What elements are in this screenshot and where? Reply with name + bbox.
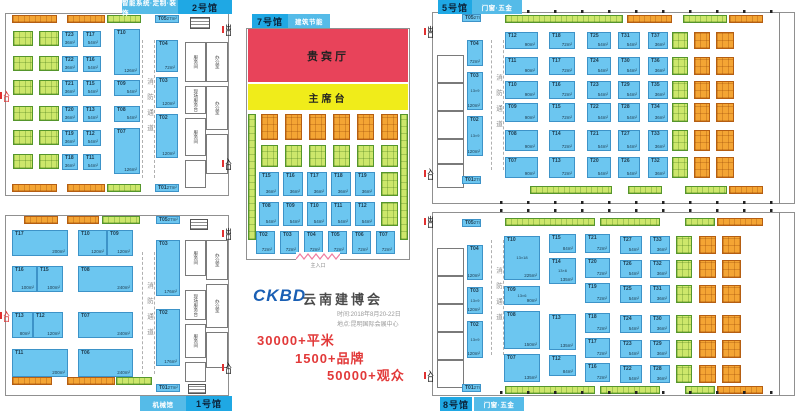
booth-T10: T1054m² xyxy=(307,202,327,226)
small-booth-cluster xyxy=(13,106,33,121)
booth-T01: T0127m² xyxy=(462,176,481,184)
service-room xyxy=(437,55,464,83)
main-entrance-label: 主入口 xyxy=(294,262,342,269)
booth-T07: T07240m² xyxy=(78,312,133,338)
booth-T06: T06240m² xyxy=(78,349,133,377)
small-booth-cluster xyxy=(716,157,734,178)
stairs-icon xyxy=(188,384,206,394)
booth-T20: T2054m² xyxy=(587,157,611,178)
service-room: 办公室 xyxy=(206,240,228,280)
booth-T21: T2172m² xyxy=(585,234,610,253)
small-booth-cluster xyxy=(12,377,52,385)
small-booth-cluster xyxy=(676,340,692,358)
hall8-entrance-left: 入口 xyxy=(424,370,432,382)
booth-T09: T0954m² xyxy=(283,202,303,226)
booth-T03: T0313×9120m² xyxy=(467,72,483,110)
booth-T18: T1836m² xyxy=(331,172,351,196)
booth-T29: T2954m² xyxy=(618,81,640,99)
vip-hall: 贵宾厅 xyxy=(248,29,408,82)
small-booth-cluster xyxy=(39,56,59,71)
booth-T35: T3536m² xyxy=(648,81,668,99)
small-booth-cluster xyxy=(39,106,59,121)
booth-T08: T0890m² xyxy=(505,130,538,151)
stairs-icon xyxy=(190,17,210,29)
service-room xyxy=(437,276,464,304)
small-booth-cluster xyxy=(12,184,57,192)
booth-T17: T1772m² xyxy=(585,338,610,358)
booth-T05: T0572m² xyxy=(328,231,347,254)
service-room xyxy=(437,332,464,360)
service-room xyxy=(437,139,464,164)
small-booth-cluster xyxy=(628,186,662,194)
small-booth-cluster xyxy=(683,15,727,23)
small-booth-cluster xyxy=(699,285,716,303)
booth-T24: T2454m² xyxy=(620,315,642,333)
small-booth-cluster xyxy=(672,103,688,122)
booth-T29: T2936m² xyxy=(650,340,670,358)
booth-T12: T1284m² xyxy=(549,355,576,376)
booth-T18: T1836m² xyxy=(62,154,78,170)
small-booth-cluster xyxy=(357,114,374,140)
small-booth-cluster xyxy=(685,186,727,194)
service-room xyxy=(437,360,464,388)
expo-venue: 地点:昆明国际会展中心 xyxy=(337,319,399,328)
wall-column-dots xyxy=(500,391,794,394)
main-entrance-zigzag xyxy=(296,252,340,260)
small-booth-cluster xyxy=(722,285,741,303)
small-booth-cluster xyxy=(13,154,33,169)
wall-line xyxy=(779,12,780,204)
booth-T10: T1013×18225m² xyxy=(504,236,540,280)
ckbd-logo: CKBD xyxy=(253,286,306,306)
hall1-entrance-right: 入口 xyxy=(222,362,230,374)
booth-T07: T07135m² xyxy=(504,354,540,382)
hall5-category: 门窗·五金 xyxy=(472,0,522,14)
booth-T01: T0127m² xyxy=(156,384,180,392)
small-booth-cluster xyxy=(116,377,152,385)
booth-T31: T3136m² xyxy=(650,285,670,303)
small-booth-cluster xyxy=(107,184,141,192)
small-booth-cluster xyxy=(285,114,302,140)
booth-T21: T2154m² xyxy=(587,130,611,151)
service-room xyxy=(437,164,464,188)
small-booth-cluster xyxy=(722,340,741,358)
service-room xyxy=(437,304,464,332)
small-booth-cluster xyxy=(13,31,33,46)
booth-T11: T1190m² xyxy=(505,57,538,75)
booth-T16: T1672m² xyxy=(585,363,610,382)
small-booth-cluster xyxy=(39,154,59,169)
booth-T09: T0913×690m² xyxy=(504,286,540,305)
small-booth-cluster xyxy=(333,145,350,167)
small-booth-cluster xyxy=(381,145,398,167)
booth-T19: T1936m² xyxy=(62,130,78,146)
service-room: 办公室 xyxy=(206,42,228,82)
small-booth-cluster xyxy=(67,377,115,385)
booth-T23: T2354m² xyxy=(587,81,611,99)
small-booth-cluster xyxy=(39,130,59,145)
booth-T09: T09120m² xyxy=(107,230,133,256)
booth-T33: T3336m² xyxy=(650,236,670,254)
small-booth-cluster xyxy=(285,145,302,167)
booth-T21: T2136m² xyxy=(62,80,78,96)
wall-column-dots xyxy=(500,10,794,13)
hall8-tag: 8号馆 xyxy=(440,397,472,411)
booth-T09: T0990m² xyxy=(505,103,538,122)
booth-T08: T08150m² xyxy=(504,311,540,349)
service-room: 现场服务台 xyxy=(185,290,206,320)
booth-T09: T0954m² xyxy=(114,80,140,96)
small-booth-cluster xyxy=(699,365,716,383)
booth-T01: T0127m² xyxy=(462,384,481,392)
service-room: 办公室 xyxy=(206,284,228,328)
booth-T17: T17200m² xyxy=(12,230,68,256)
booth-T08: T0854m² xyxy=(259,202,279,226)
fire-corridor: 消防通道 xyxy=(142,40,155,178)
booth-T32: T3236m² xyxy=(650,260,670,278)
booth-T19: T1936m² xyxy=(355,172,375,196)
booth-T12: T1254m² xyxy=(83,130,101,146)
hall2-tag: 2号馆 xyxy=(178,0,232,14)
wall-column-dots xyxy=(500,201,794,204)
booth-T30: T3054m² xyxy=(618,57,640,75)
small-booth-cluster xyxy=(716,130,734,151)
small-booth-cluster xyxy=(102,216,140,224)
booth-T30: T3036m² xyxy=(650,315,670,333)
booth-T27: T2754m² xyxy=(618,130,640,151)
small-booth-cluster xyxy=(694,32,710,49)
booth-T12: T12120m² xyxy=(33,312,63,338)
hall7-category: 建筑节能 xyxy=(288,14,330,28)
booth-T07: T07126m² xyxy=(114,128,140,174)
floorplan-canvas: 智能系统·定制·装饰 2号馆 7号馆 建筑节能 5号馆 门窗·五金 机械馆 1号… xyxy=(0,0,800,411)
hall8-category: 门窗·五金 xyxy=(474,397,524,411)
booth-T07: T0790m² xyxy=(505,157,538,178)
booth-T11: T1154m² xyxy=(83,154,101,170)
hall1-entrance-left: 入口 xyxy=(0,310,8,322)
expo-name: 云南建博会 xyxy=(303,289,383,308)
booth-T22: T2254m² xyxy=(620,365,642,383)
small-booth-cluster xyxy=(722,260,741,278)
booth-T10: T10126m² xyxy=(114,29,140,75)
booth-T02: T02176m² xyxy=(156,309,180,366)
booth-T13: T1380m² xyxy=(12,312,33,338)
small-booth-cluster xyxy=(699,236,716,254)
small-booth-cluster xyxy=(716,103,734,122)
booth-T26: T2654m² xyxy=(618,157,640,178)
booth-T18: T1872m² xyxy=(549,32,575,49)
small-booth-cluster xyxy=(12,15,57,23)
small-booth-cluster xyxy=(676,260,692,278)
hall5-panel xyxy=(432,12,795,204)
stairs-icon xyxy=(190,219,208,230)
booth-T11: T11200m² xyxy=(12,349,68,377)
booth-T17: T1736m² xyxy=(307,172,327,196)
booth-T02: T02120m² xyxy=(156,114,178,158)
booth-T22: T2236m² xyxy=(62,56,78,72)
small-booth-cluster xyxy=(357,145,374,167)
service-room xyxy=(185,160,206,188)
expo-time: 时间:2018年8月20-22日 xyxy=(337,309,401,318)
booth-T13: T1354m² xyxy=(83,106,101,122)
small-booth-cluster xyxy=(261,145,278,167)
booth-T14: T1413×6135m² xyxy=(549,258,576,284)
booth-T15: T15100m² xyxy=(37,266,63,292)
booth-T14: T1472m² xyxy=(549,130,575,151)
booth-T07: T0772m² xyxy=(376,231,395,254)
small-booth-cluster xyxy=(729,186,763,194)
hall1-exit-right: 出口 xyxy=(222,228,230,240)
booth-T10: T10120m² xyxy=(78,230,107,256)
service-room: 服务间 xyxy=(185,324,206,358)
small-booth-cluster xyxy=(24,216,58,224)
small-booth-cluster xyxy=(676,365,692,383)
small-booth-cluster xyxy=(600,218,660,226)
small-booth-cluster xyxy=(67,184,105,192)
booth-T32: T3236m² xyxy=(648,157,668,178)
booth-T05: T0527m² xyxy=(156,216,180,224)
service-room xyxy=(437,83,464,111)
booth-T28: T2854m² xyxy=(618,103,640,122)
service-room xyxy=(437,248,464,276)
small-booth-cluster xyxy=(694,103,710,122)
hall2-category: 智能系统·定制·装饰 xyxy=(122,0,178,14)
booth-T27: T2754m² xyxy=(620,236,642,254)
booth-T37: T3736m² xyxy=(648,32,668,49)
small-booth-cluster xyxy=(694,57,710,75)
hall5-exit-left: 出口 xyxy=(424,26,432,38)
small-booth-cluster xyxy=(676,285,692,303)
booth-T28: T2836m² xyxy=(650,365,670,383)
small-booth-cluster xyxy=(672,57,688,75)
fire-corridor: 消防通道 xyxy=(491,40,504,170)
hall2-entrance-left: 入口 xyxy=(0,90,8,102)
small-booth-cluster xyxy=(248,114,256,240)
small-booth-cluster xyxy=(694,81,710,99)
booth-T08: T08240m² xyxy=(78,266,133,292)
small-booth-cluster xyxy=(261,114,278,140)
booth-T31: T3154m² xyxy=(618,32,640,49)
small-booth-cluster xyxy=(676,236,692,254)
booth-T02: T0213×9120m² xyxy=(467,116,483,156)
booth-T25: T2554m² xyxy=(620,285,642,303)
booth-T18: T1872m² xyxy=(585,313,610,333)
booth-T04: T0472m² xyxy=(467,40,483,66)
booth-T11: T1154m² xyxy=(331,202,351,226)
booth-T23: T2336m² xyxy=(62,31,78,47)
small-booth-cluster xyxy=(722,365,741,383)
booth-T08: T0854m² xyxy=(114,106,140,122)
small-booth-cluster xyxy=(309,145,326,167)
stat-visitors: 50000+观众 xyxy=(327,365,405,384)
fire-corridor: 消防通道 xyxy=(491,240,504,355)
booth-T05: T0527m² xyxy=(462,219,481,227)
booth-T04: T0472m² xyxy=(304,231,323,254)
booth-T03: T0313×9120m² xyxy=(467,287,483,314)
booth-T02: T0272m² xyxy=(256,231,275,254)
small-booth-cluster xyxy=(309,114,326,140)
hall7-tag: 7号馆 xyxy=(252,14,288,28)
small-booth-cluster xyxy=(400,114,408,240)
small-booth-cluster xyxy=(381,202,398,226)
booth-T15: T1554m² xyxy=(83,80,101,96)
booth-T36: T3636m² xyxy=(648,57,668,75)
small-booth-cluster xyxy=(505,218,595,226)
small-booth-cluster xyxy=(729,15,763,23)
small-booth-cluster xyxy=(722,315,741,333)
stat-area: 30000+平米 xyxy=(257,330,335,349)
booth-T15: T1584m² xyxy=(549,234,576,253)
booth-T22: T2254m² xyxy=(587,103,611,122)
booth-T03: T0372m² xyxy=(280,231,299,254)
small-booth-cluster xyxy=(699,315,716,333)
service-room: 服务间 xyxy=(185,240,206,276)
small-booth-cluster xyxy=(672,157,688,178)
booth-T01: T0127m² xyxy=(155,184,179,192)
wall-line xyxy=(779,212,780,396)
small-booth-cluster xyxy=(39,80,59,95)
booth-T16: T1654m² xyxy=(83,56,101,72)
booth-T10: T1090m² xyxy=(505,81,538,99)
small-booth-cluster xyxy=(381,114,398,140)
booth-T16: T1636m² xyxy=(283,172,303,196)
booth-T13: T1372m² xyxy=(549,157,575,178)
booth-T16: T16100m² xyxy=(12,266,37,292)
hall1-category: 机械馆 xyxy=(140,396,186,411)
small-booth-cluster xyxy=(13,56,33,71)
booth-T20: T2036m² xyxy=(62,106,78,122)
small-booth-cluster xyxy=(39,31,59,46)
booth-T12: T1290m² xyxy=(505,32,538,49)
small-booth-cluster xyxy=(716,32,734,49)
small-booth-cluster xyxy=(685,218,715,226)
service-room: 服务间 xyxy=(185,118,206,156)
hall2-exit-right: 出口 xyxy=(222,24,230,36)
booth-T06: T0672m² xyxy=(352,231,371,254)
small-booth-cluster xyxy=(699,260,716,278)
small-booth-cluster xyxy=(530,186,612,194)
booth-T25: T2554m² xyxy=(587,32,611,49)
hall2-entrance-right: 入口 xyxy=(222,158,230,170)
booth-T17: T1772m² xyxy=(549,57,575,75)
fire-corridor: 消防通道 xyxy=(142,252,155,374)
booth-T17: T1754m² xyxy=(83,31,101,47)
booth-T33: T3336m² xyxy=(648,130,668,151)
wall-column-dots xyxy=(500,209,794,212)
small-booth-cluster xyxy=(13,80,33,95)
small-booth-cluster xyxy=(67,216,99,224)
service-room: 办公室 xyxy=(206,86,228,130)
hall5-tag: 5号馆 xyxy=(438,0,472,14)
small-booth-cluster xyxy=(717,218,763,226)
hall1-tag: 1号馆 xyxy=(186,396,232,411)
service-room xyxy=(437,111,464,139)
small-booth-cluster xyxy=(13,130,33,145)
booth-T15: T1572m² xyxy=(549,103,575,122)
small-booth-cluster xyxy=(672,130,688,151)
booth-T03: T03176m² xyxy=(156,240,180,296)
service-room: 现场服务台 xyxy=(185,86,206,114)
small-booth-cluster xyxy=(381,172,398,196)
hall8-exit-left: 出口 xyxy=(424,216,432,228)
small-booth-cluster xyxy=(505,15,623,23)
hall5-entrance-left: 入口 xyxy=(424,168,432,180)
small-booth-cluster xyxy=(722,236,741,254)
small-booth-cluster xyxy=(333,114,350,140)
small-booth-cluster xyxy=(672,81,688,99)
booth-T20: T2072m² xyxy=(585,258,610,278)
small-booth-cluster xyxy=(672,32,688,49)
booth-T02: T0213×9120m² xyxy=(467,321,483,358)
booth-T05: T0527m² xyxy=(462,14,481,22)
booth-T15: T1536m² xyxy=(259,172,279,196)
small-booth-cluster xyxy=(676,315,692,333)
small-booth-cluster xyxy=(716,81,734,99)
booth-T19: T1972m² xyxy=(585,283,610,303)
small-booth-cluster xyxy=(699,340,716,358)
main-stage: 主席台 xyxy=(248,84,408,110)
small-booth-cluster xyxy=(67,15,105,23)
booth-T34: T3436m² xyxy=(648,103,668,122)
service-room: 服务间 xyxy=(185,42,206,82)
small-booth-cluster xyxy=(694,157,710,178)
booth-T23: T2354m² xyxy=(620,340,642,358)
booth-T04: T04120m² xyxy=(467,245,483,280)
booth-T26: T2654m² xyxy=(620,260,642,278)
booth-T24: T2454m² xyxy=(587,57,611,75)
small-booth-cluster xyxy=(627,15,672,23)
booth-T13: T13135m² xyxy=(549,314,576,350)
small-booth-cluster xyxy=(694,130,710,151)
booth-T04: T0472m² xyxy=(156,40,178,72)
booth-T03: T03120m² xyxy=(156,77,178,108)
booth-T16: T1672m² xyxy=(549,81,575,99)
service-room xyxy=(185,362,206,382)
booth-T12: T1254m² xyxy=(355,202,375,226)
small-booth-cluster xyxy=(716,57,734,75)
